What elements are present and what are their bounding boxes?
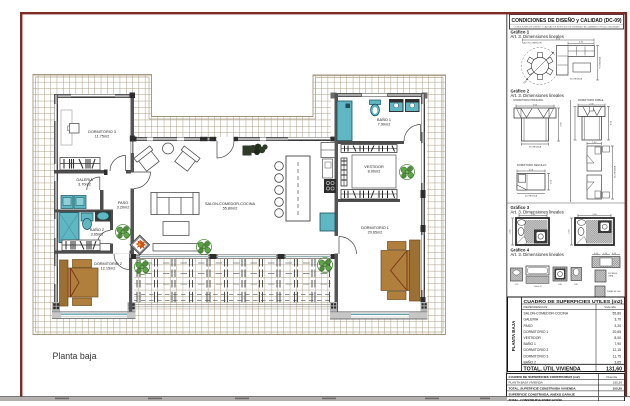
svg-text:20,65: 20,65 xyxy=(613,330,622,334)
svg-text:SUPERFICIE CONSTRUIDA, ANEXO G: SUPERFICIE CONSTRUIDA, ANEXO GARAJE xyxy=(509,392,575,396)
svg-text:VESTIDOR: VESTIDOR xyxy=(524,336,542,340)
svg-text:CONDICIONES DE DISEÑO y CALIDA: CONDICIONES DE DISEÑO y CALIDAD (DC-09) xyxy=(512,17,622,24)
svg-text:3,20: 3,20 xyxy=(614,324,621,328)
svg-text:BAÑO 2: BAÑO 2 xyxy=(90,227,104,232)
svg-text:SU MEDIDA: SU MEDIDA xyxy=(529,145,542,148)
svg-text:3.20m2: 3.20m2 xyxy=(117,206,130,210)
svg-text:TOTAL, CONSTRUIDA EDIFICACIÓN: TOTAL, CONSTRUIDA EDIFICACIÓN xyxy=(509,397,563,401)
svg-text:7.90m2: 7.90m2 xyxy=(378,123,391,127)
svg-text:PASO: PASO xyxy=(524,324,534,328)
svg-text:Vivienda: Vivienda xyxy=(606,375,617,379)
svg-text:DEPENDENCIAS: DEPENDENCIAS xyxy=(524,305,548,309)
svg-text:8,00: 8,00 xyxy=(614,336,621,340)
svg-text:DORMITORIO 3: DORMITORIO 3 xyxy=(88,130,116,134)
svg-text:DORMITORIO 2: DORMITORIO 2 xyxy=(94,262,122,266)
svg-text:55.80m2: 55.80m2 xyxy=(223,207,238,211)
svg-text:11,75: 11,75 xyxy=(613,354,621,358)
svg-text:20.65m2: 20.65m2 xyxy=(368,231,383,235)
svg-text:SALON-COMEDOR: SALON-COMEDOR xyxy=(522,42,542,45)
svg-text:3,70: 3,70 xyxy=(614,318,621,322)
svg-text:131,60: 131,60 xyxy=(606,366,622,372)
svg-text:DORMITORIO 1: DORMITORIO 1 xyxy=(361,226,389,230)
svg-text:CUADRO DE SUPERFICIES CONSTRUI: CUADRO DE SUPERFICIES CONSTRUIDAS (m2) xyxy=(509,375,580,379)
svg-text:PASO: PASO xyxy=(118,201,128,205)
svg-text:12.15m2: 12.15m2 xyxy=(101,267,116,271)
svg-text:0.80: 0.80 xyxy=(558,284,562,286)
svg-text:GALERIA: GALERIA xyxy=(524,318,539,322)
svg-text:8.00m2: 8.00m2 xyxy=(368,170,381,174)
svg-text:SALON-COMEDOR-COCINA: SALON-COMEDOR-COCINA xyxy=(205,202,255,206)
svg-text:155,20: 155,20 xyxy=(613,387,623,391)
svg-text:7,90: 7,90 xyxy=(614,342,621,346)
svg-text:BAÑO 1: BAÑO 1 xyxy=(524,341,537,346)
svg-text:CONDICIONES DE DISEÑO Y CALIDA: CONDICIONES DE DISEÑO Y CALIDAD DE EDIFI… xyxy=(514,26,621,29)
svg-text:PLANTA BAJA: PLANTA BAJA xyxy=(511,320,516,351)
svg-text:BAÑO 1: BAÑO 1 xyxy=(377,117,391,122)
svg-text:DORMITORIO 3: DORMITORIO 3 xyxy=(524,354,549,358)
svg-text:SU MEDIDA: SU MEDIDA xyxy=(614,165,617,178)
svg-text:TOTAL, ÚTIL VIVIENDA: TOTAL, ÚTIL VIVIENDA xyxy=(524,365,581,372)
svg-text:0.70: 0.70 xyxy=(515,284,519,286)
svg-text:12,15: 12,15 xyxy=(613,348,622,352)
svg-text:155,20: 155,20 xyxy=(613,381,623,385)
svg-text:OBRA: OBRA xyxy=(608,275,614,278)
svg-text:PLANTA BAJA VIVIENDA: PLANTA BAJA VIVIENDA xyxy=(509,381,543,385)
svg-text:TOTAL, SUPERFICIE CONSTRUIDA V: TOTAL, SUPERFICIE CONSTRUIDA VIVIENDA xyxy=(509,387,577,391)
svg-text:11.75m2: 11.75m2 xyxy=(95,135,110,139)
svg-text:3.70m2: 3.70m2 xyxy=(78,183,91,187)
svg-text:55,80: 55,80 xyxy=(613,312,622,316)
svg-text:Vivienda: Vivienda xyxy=(604,305,616,309)
svg-text:Art. 3. Dimensiones lineales: Art. 3. Dimensiones lineales xyxy=(511,93,564,98)
svg-text:TU MEDIDA: TU MEDIDA xyxy=(599,56,602,69)
svg-text:0.60: 0.60 xyxy=(574,284,578,286)
svg-text:DORMITORIO SENCILLO: DORMITORIO SENCILLO xyxy=(517,164,546,167)
svg-text:Planta baja: Planta baja xyxy=(53,351,97,361)
svg-text:Art. 3. Dimensiones lineales: Art. 3. Dimensiones lineales xyxy=(511,252,564,257)
svg-text:CUADRO DE SUPERFICIES UTILES (: CUADRO DE SUPERFICIES UTILES (m2) xyxy=(524,299,623,304)
svg-text:3.65m2: 3.65m2 xyxy=(91,233,104,237)
svg-text:PIEZAS DE .040: PIEZAS DE .040 xyxy=(607,290,620,293)
svg-text:DORMITORIO DOBLE: DORMITORIO DOBLE xyxy=(578,99,604,102)
svg-text:GALERIA: GALERIA xyxy=(76,178,93,182)
svg-text:DORMITORIO PRINCIPAL: DORMITORIO PRINCIPAL xyxy=(514,99,545,102)
svg-text:SU MEDIDA: SU MEDIDA xyxy=(525,195,538,198)
svg-text:DORMITORIO 2: DORMITORIO 2 xyxy=(524,348,549,352)
svg-text:SALON-COMEDOR-COCINA: SALON-COMEDOR-COCINA xyxy=(524,312,569,316)
svg-text:SU MEDIDA: SU MEDIDA xyxy=(570,77,583,80)
svg-text:Art. 3. Dimensiones lineales: Art. 3. Dimensiones lineales xyxy=(511,210,564,215)
svg-text:DORMITORIO 1: DORMITORIO 1 xyxy=(524,330,549,334)
svg-text:1.40x0.70: 1.40x0.70 xyxy=(534,286,542,288)
svg-text:BAÑO 2: BAÑO 2 xyxy=(524,359,537,364)
svg-text:VESTIDOR: VESTIDOR xyxy=(364,165,384,169)
svg-text:3,65: 3,65 xyxy=(614,360,621,364)
